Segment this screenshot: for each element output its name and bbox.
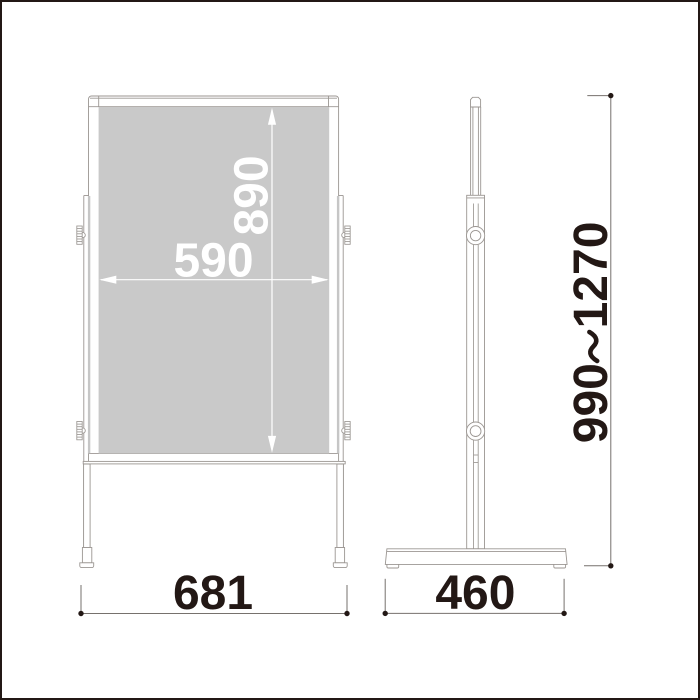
svg-text:890: 890: [226, 155, 279, 235]
svg-text:1270: 1270: [565, 222, 618, 329]
svg-text:990: 990: [565, 363, 618, 443]
svg-text:460: 460: [435, 567, 515, 620]
svg-text:681: 681: [173, 567, 253, 620]
svg-text:590: 590: [173, 235, 253, 288]
